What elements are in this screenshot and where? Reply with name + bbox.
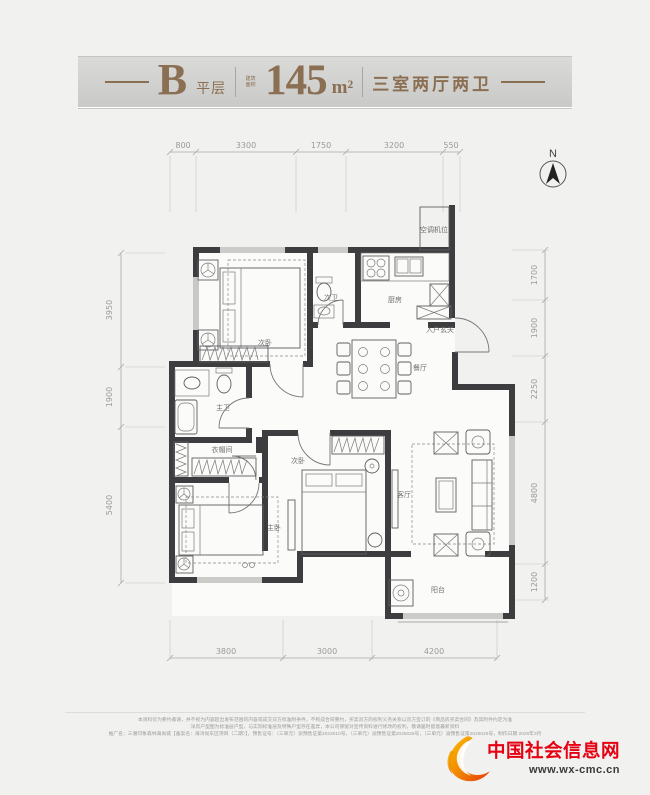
dim-right-1: 1900 <box>530 318 539 338</box>
logo-site-url: www.wx-cmc.cn <box>529 764 620 776</box>
dimension-top: 800 3300 1750 3200 550 <box>167 141 463 212</box>
logo-texts: 中国社会信息网 www.wx-cmc.cn <box>487 737 620 776</box>
dim-right-2: 2250 <box>530 379 539 399</box>
dim-left-1: 1900 <box>105 387 114 407</box>
site-logo: 中国社会信息网 www.wx-cmc.cn <box>443 729 608 791</box>
dim-top-4: 550 <box>443 141 458 150</box>
floor-plan: 800 3300 1750 3200 550 3950 1900 5400 17… <box>0 0 650 795</box>
room-label-kitchen: 厨房 <box>388 295 402 304</box>
north-arrow: N <box>540 148 566 187</box>
window-master-bottom <box>197 577 262 583</box>
dim-bottom-0: 3800 <box>216 647 236 656</box>
dimension-left: 3950 1900 5400 <box>105 250 165 586</box>
room-label-bedroom2: 次卧 <box>258 338 272 347</box>
window-living-right <box>509 436 515 545</box>
dim-right-4: 1200 <box>530 572 539 592</box>
room-label-foyer: 入户玄关 <box>426 325 454 334</box>
dim-left-0: 3950 <box>105 300 114 320</box>
room-label-bedroom3: 次卧 <box>291 456 305 465</box>
north-label: N <box>549 148 557 160</box>
window-bedroom2-left <box>193 277 199 330</box>
dim-right-0: 1700 <box>530 265 539 285</box>
dim-bottom-1: 3000 <box>317 647 337 656</box>
room-label-dining: 餐厅 <box>413 363 427 372</box>
window-bath2-top <box>318 247 348 253</box>
room-label-closet: 衣帽间 <box>212 445 233 454</box>
dim-top-3: 3200 <box>384 141 404 150</box>
dim-left-2: 5400 <box>105 495 114 515</box>
entry-door <box>455 318 489 352</box>
room-label-balcony: 阳台 <box>431 585 445 594</box>
dim-right-3: 4800 <box>530 483 539 503</box>
disclaimer-line-1: 本资料仅为要约邀请，并不视为内容超出发布范围的内容或成交双方标准附条件，不构成合… <box>65 717 585 724</box>
dimension-bottom: 3800 3000 4200 <box>167 620 500 661</box>
window-balcony-bottom <box>398 613 508 622</box>
footer-divider <box>65 712 585 713</box>
room-label-ac: 空调机位 <box>420 225 448 234</box>
flame-icon <box>443 731 493 789</box>
dimension-right: 1700 1900 2250 4800 1200 <box>512 247 549 603</box>
dim-top-0: 800 <box>175 141 190 150</box>
room-label-living: 客厅 <box>397 490 411 499</box>
window-bedroom2-top <box>220 247 285 253</box>
logo-site-name: 中国社会信息网 <box>487 737 620 763</box>
room-label-bath2: 次卫 <box>324 293 338 302</box>
dim-top-2: 1750 <box>311 141 331 150</box>
dim-top-1: 3300 <box>236 141 256 150</box>
room-label-master: 主卧 <box>267 523 281 532</box>
room-label-bath1: 主卫 <box>216 403 230 412</box>
dim-bottom-2: 4200 <box>424 647 444 656</box>
